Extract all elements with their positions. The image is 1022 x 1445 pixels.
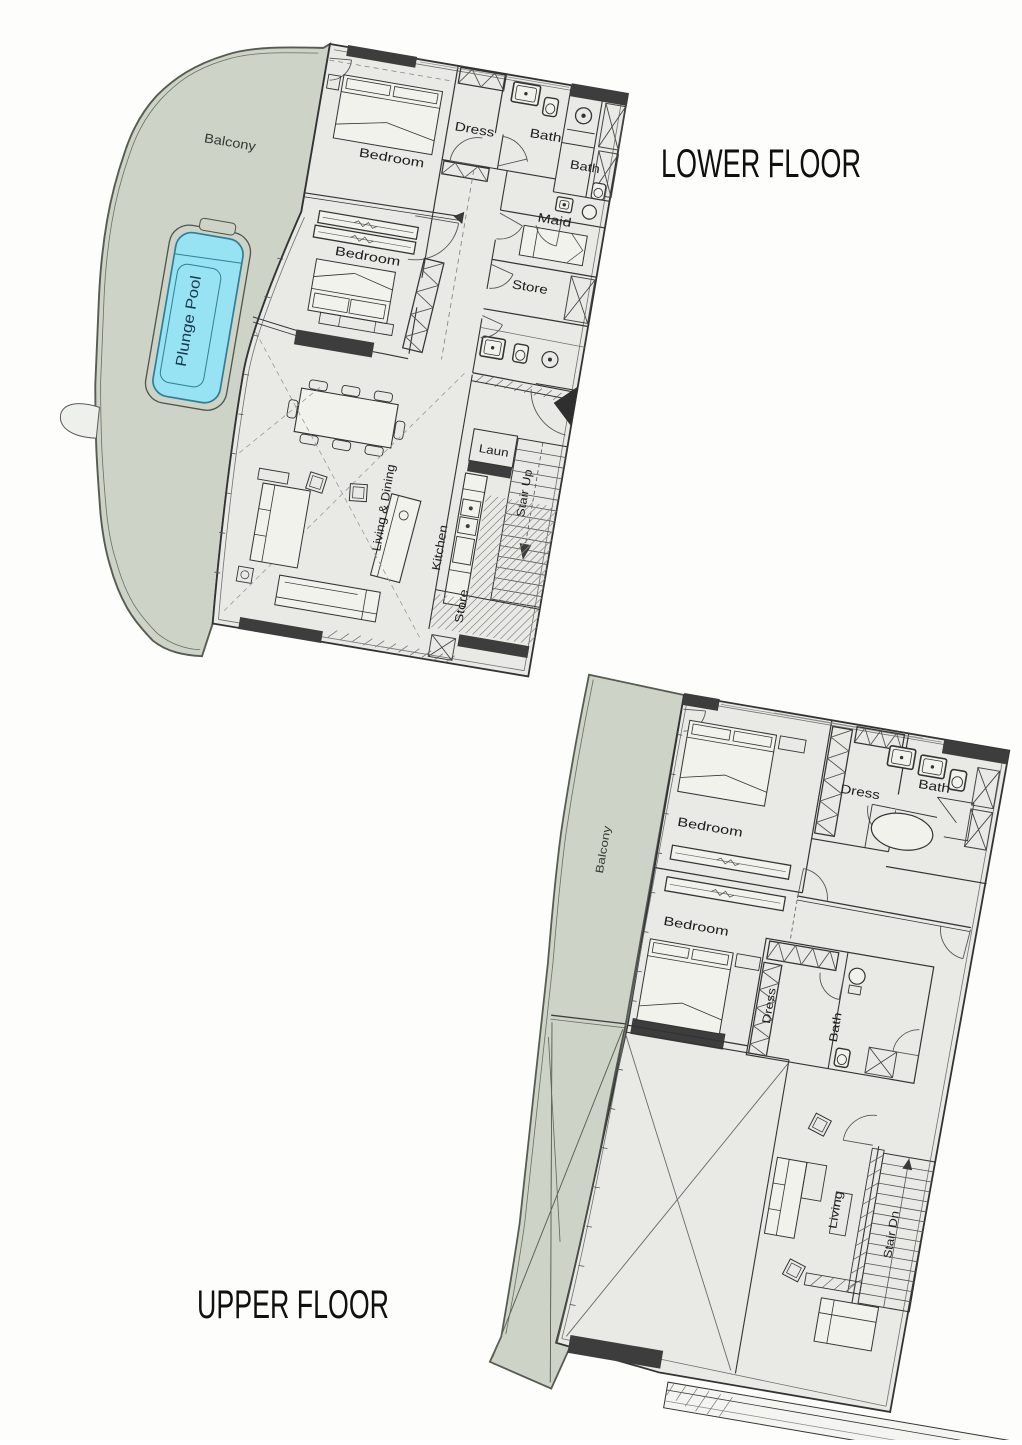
- svg-text:UPPER FLOOR: UPPER FLOOR: [197, 1283, 389, 1327]
- svg-text:LOWER FLOOR: LOWER FLOOR: [661, 142, 861, 186]
